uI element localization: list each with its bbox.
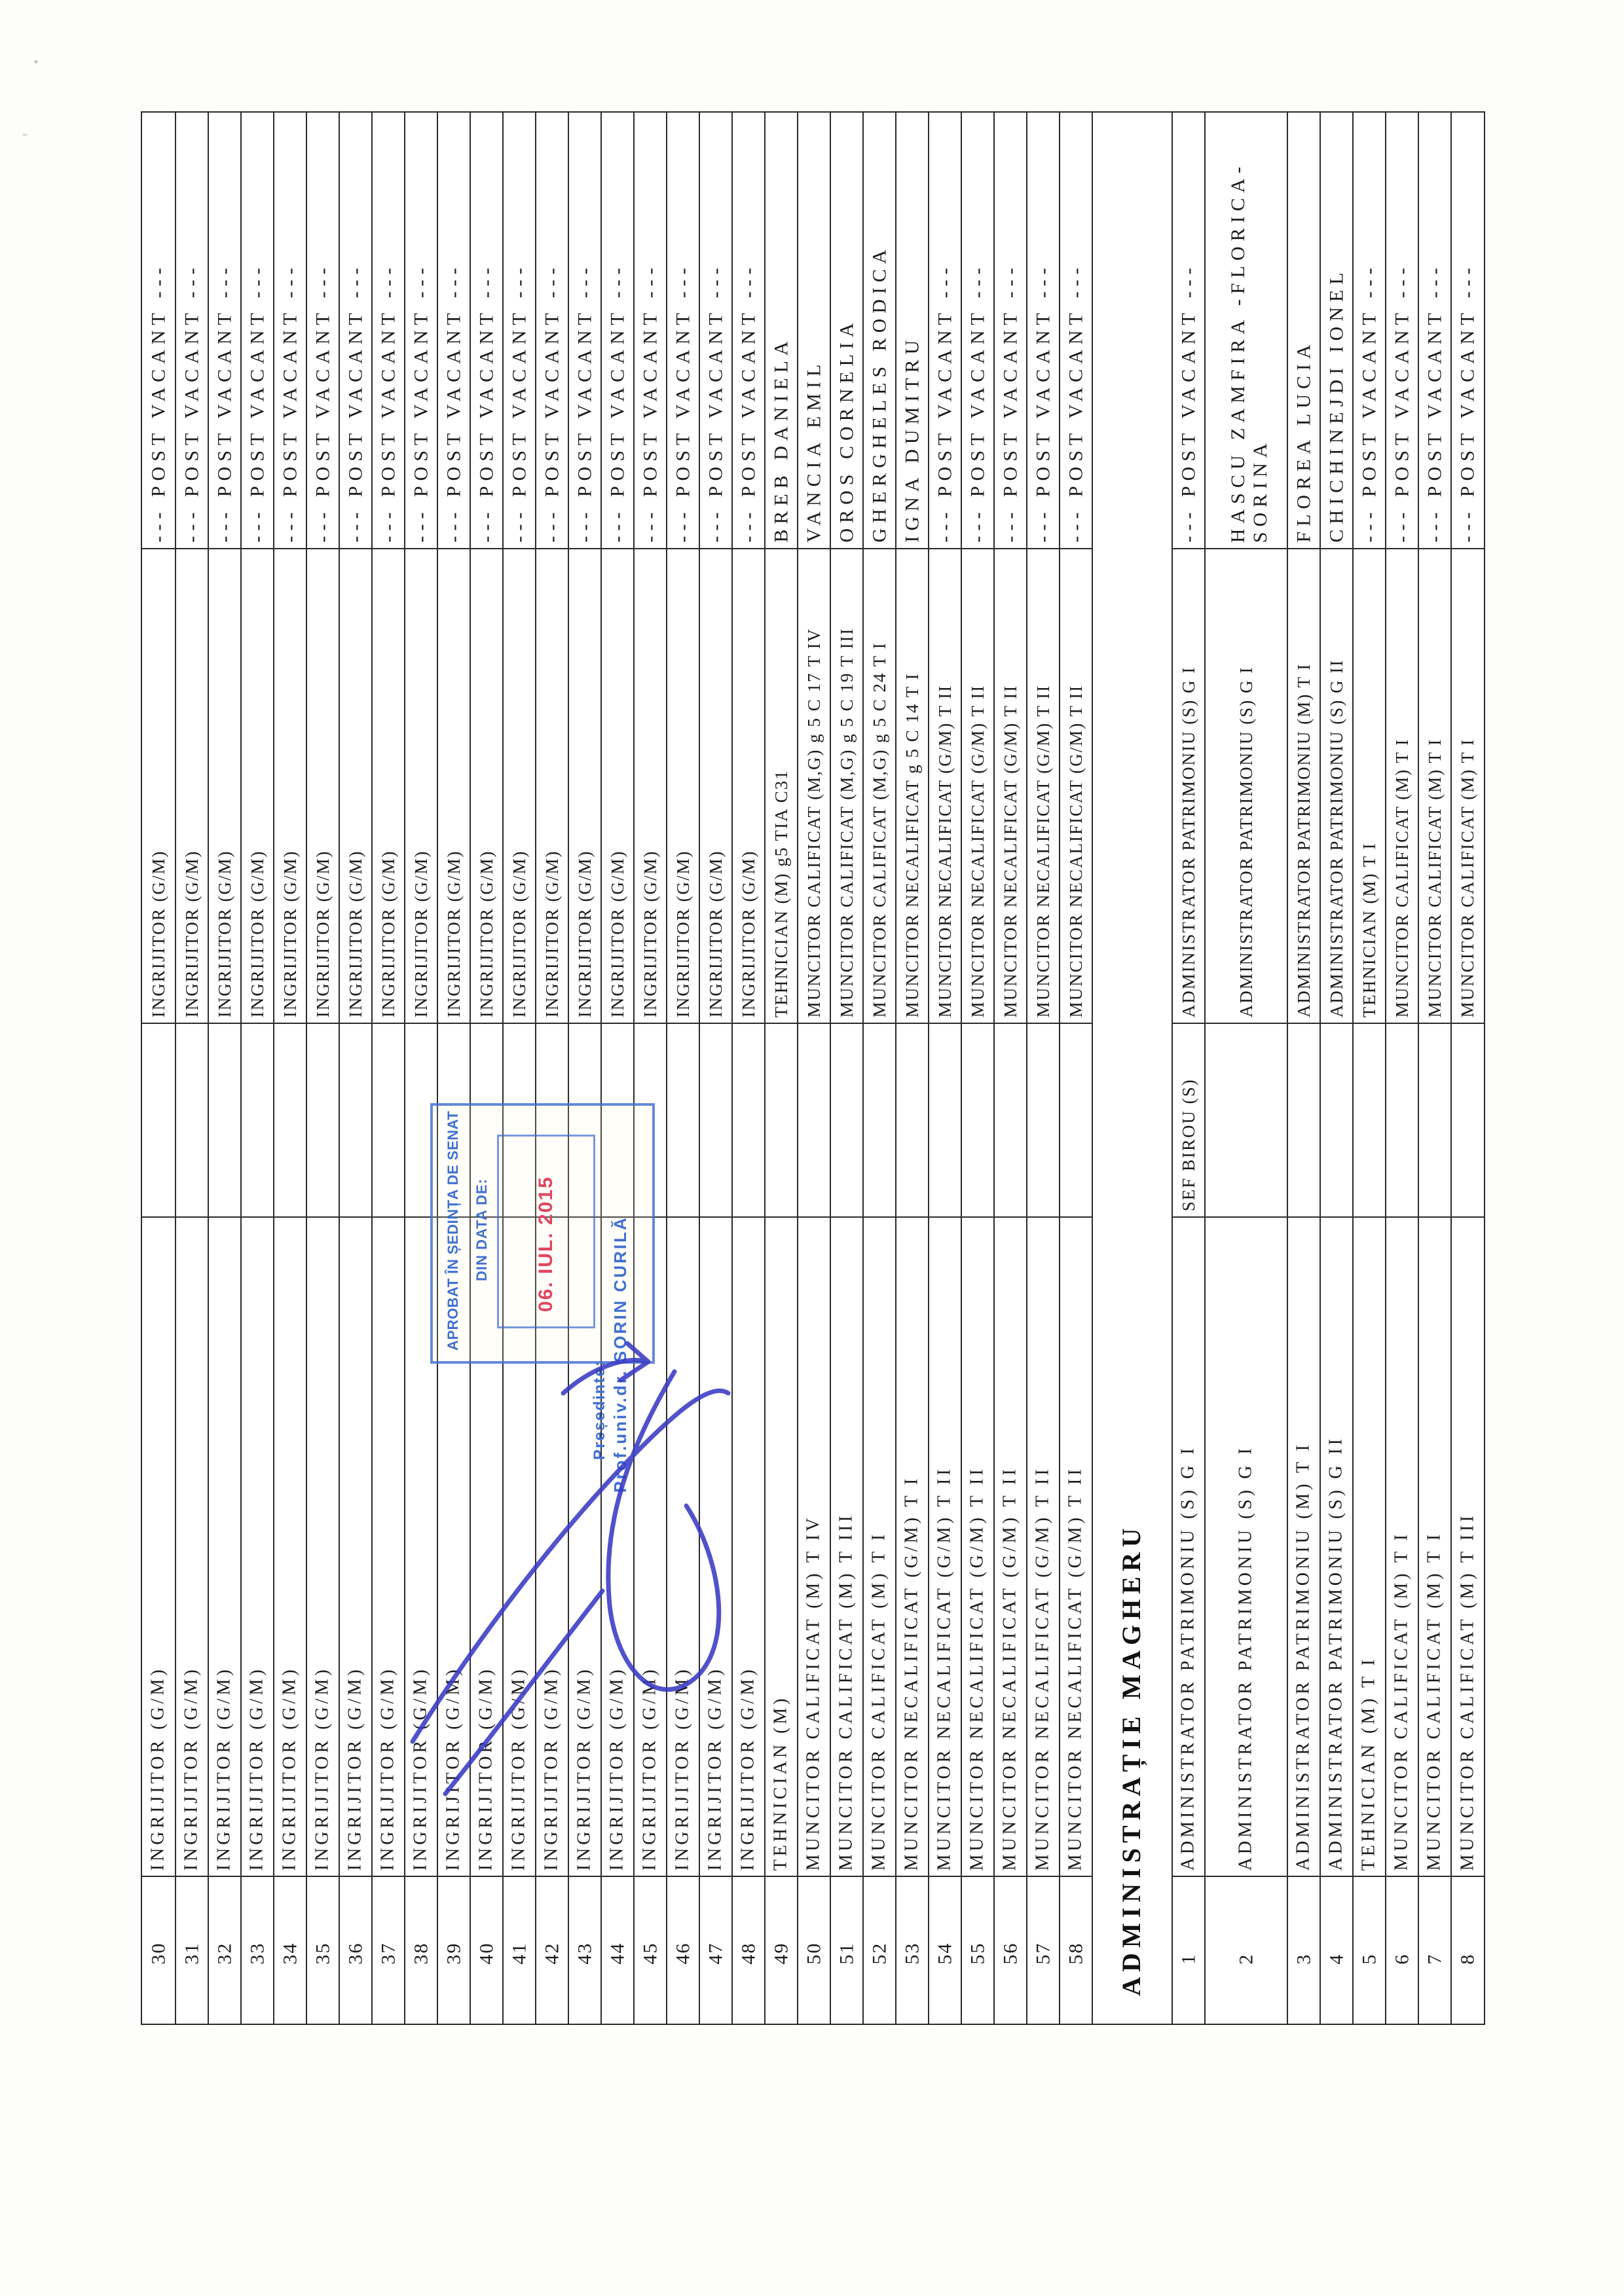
cell-holder-name-text: --- POST VACANT --- <box>279 263 301 543</box>
cell-holder-name: --- POST VACANT --- <box>1060 113 1092 549</box>
cell-row-number-text: 42 <box>541 1942 563 1965</box>
cell-row-number-text: 8 <box>1456 1954 1479 1965</box>
cell-position-detail: MUNCITOR CALIFICAT (M) T I <box>1452 549 1484 1024</box>
cell-position: MUNCITOR CALIFICAT (M) T I <box>1419 1218 1450 1877</box>
cell-position-text: INGRIJITOR (G/M) <box>214 1666 234 1870</box>
cell-position-detail: MUNCITOR NECALIFICAT (G/M) T II <box>1060 549 1092 1024</box>
cell-position: MUNCITOR CALIFICAT (M) T I <box>864 1218 895 1877</box>
cell-management-position <box>896 1024 928 1218</box>
cell-position-text: ADMINISTRATOR PATRIMONIU (S) G II <box>1326 1436 1346 1870</box>
cell-holder-name: CHICHINEJDI IONEL <box>1321 113 1352 549</box>
cell-row-number-text: 55 <box>967 1942 989 1965</box>
cell-row-number-text: 1 <box>1177 1954 1200 1965</box>
cell-management-position <box>766 1024 797 1218</box>
cell-row-number-text: 54 <box>934 1942 956 1965</box>
cell-position-detail-text: MUNCITOR CALIFICAT (M,G) g 5 C 17 T IV <box>804 628 824 1017</box>
cell-position-detail: ADMINISTRATOR PATRIMONIU (S) G I <box>1173 549 1204 1024</box>
cell-row-number: 48 <box>733 1877 764 2024</box>
cell-management-position <box>1386 1024 1418 1218</box>
cell-holder-name-text: --- POST VACANT --- <box>246 263 268 543</box>
cell-row-number: 55 <box>962 1877 993 2024</box>
cell-position-text: MUNCITOR NECALIFICAT (G/M) T II <box>1065 1466 1086 1870</box>
cell-row-number-text: 2 <box>1235 1954 1257 1965</box>
table-row: --- POST VACANT ---TEHNICIAN (M) T ITEHN… <box>1352 113 1385 2024</box>
cell-holder-name-text: CHICHINEJDI IONEL <box>1325 268 1348 543</box>
cell-holder-name-text: --- POST VACANT --- <box>410 263 432 543</box>
cell-holder-name-text: --- POST VACANT --- <box>1456 263 1479 543</box>
cell-row-number-text: 32 <box>213 1942 236 1965</box>
cell-position-detail-text: INGRIJITOR (G/M) <box>411 850 431 1017</box>
cell-position: INGRIJITOR (G/M) <box>274 1218 306 1877</box>
table-row: --- POST VACANT ---INGRIJITOR (G/M)INGRI… <box>208 113 240 2024</box>
cell-holder-name: --- POST VACANT --- <box>405 113 437 549</box>
cell-row-number: 56 <box>995 1877 1026 2024</box>
cell-row-number-text: 37 <box>377 1942 399 1965</box>
cell-position-detail: INGRIJITOR (G/M) <box>536 549 568 1024</box>
cell-row-number: 32 <box>209 1877 240 2024</box>
cell-position-detail-text: INGRIJITOR (G/M) <box>640 850 660 1017</box>
cell-holder-name: --- POST VACANT --- <box>929 113 961 549</box>
cell-holder-name-text: --- POST VACANT --- <box>639 263 661 543</box>
cell-position-detail-text: INGRIJITOR (G/M) <box>542 850 562 1017</box>
table-row: --- POST VACANT ---MUNCITOR NECALIFICAT … <box>928 113 961 2024</box>
cell-holder-name: --- POST VACANT --- <box>700 113 731 549</box>
cell-row-number: 52 <box>864 1877 895 2024</box>
cell-holder-name: HASCU ZAMFIRA -FLORICA-SORINA <box>1206 113 1287 549</box>
cell-position-detail-text: INGRIJITOR (G/M) <box>346 850 365 1017</box>
cell-holder-name-text: OROS CORNELIA <box>836 318 858 543</box>
cell-position-detail: MUNCITOR NECALIFICAT (G/M) T II <box>929 549 961 1024</box>
cell-position-text: INGRIJITOR (G/M) <box>247 1666 267 1870</box>
cell-holder-name: --- POST VACANT --- <box>1173 113 1204 549</box>
cell-holder-name-text: --- POST VACANT --- <box>213 263 236 543</box>
table-row: --- POST VACANT ---ADMINISTRATOR PATRIMO… <box>1172 113 1204 2024</box>
cell-position-detail-text: MUNCITOR NECALIFICAT (G/M) T II <box>1001 684 1020 1017</box>
cell-holder-name: --- POST VACANT --- <box>962 113 993 549</box>
cell-position-detail-text: ADMINISTRATOR PATRIMONIU (S) G II <box>1327 659 1346 1017</box>
cell-position-detail: INGRIJITOR (G/M) <box>373 549 404 1024</box>
cell-position-detail-text: ADMINISTRATOR PATRIMONIU (M) T I <box>1294 663 1314 1017</box>
cell-holder-name-text: --- POST VACANT --- <box>508 263 530 543</box>
cell-position-detail-text: INGRIJITOR (G/M) <box>739 850 758 1017</box>
cell-position: MUNCITOR NECALIFICAT (G/M) T II <box>995 1218 1026 1877</box>
cell-position-detail-text: TEHNICIAN (M) g5 TIA C31 <box>771 769 791 1017</box>
cell-holder-name-text: --- POST VACANT --- <box>312 263 334 543</box>
cell-management-position <box>667 1024 699 1218</box>
cell-row-number-text: 6 <box>1391 1954 1413 1965</box>
cell-holder-name: --- POST VACANT --- <box>504 113 535 549</box>
cell-row-number-text: 52 <box>868 1942 891 1965</box>
cell-row-number: 33 <box>242 1877 273 2024</box>
cell-position-text: MUNCITOR CALIFICAT (M) T IV <box>803 1514 824 1870</box>
cell-position-detail-text: INGRIJITOR (G/M) <box>149 850 168 1017</box>
cell-holder-name-text: --- POST VACANT --- <box>737 263 760 543</box>
cell-row-number: 58 <box>1060 1877 1092 2024</box>
table-row: --- POST VACANT ---MUNCITOR NECALIFICAT … <box>1026 113 1059 2024</box>
cell-position-detail-text: MUNCITOR CALIFICAT (M) T I <box>1458 738 1477 1017</box>
cell-position-detail: INGRIJITOR (G/M) <box>176 549 208 1024</box>
cell-row-number: 54 <box>929 1877 961 2024</box>
cell-row-number-text: 5 <box>1358 1954 1380 1965</box>
cell-position-text: MUNCITOR CALIFICAT (M) T III <box>836 1512 857 1870</box>
table-row: FLOREA LUCIAADMINISTRATOR PATRIMONIU (M)… <box>1287 113 1319 2024</box>
cell-row-number-text: 31 <box>181 1942 203 1965</box>
cell-row-number: 8 <box>1452 1877 1484 2024</box>
cell-holder-name: IGNA DUMITRU <box>896 113 928 549</box>
cell-position: ADMINISTRATOR PATRIMONIU (S) G II <box>1321 1218 1352 1877</box>
cell-holder-name-text: GHERGHELES RODICA <box>868 245 891 543</box>
cell-holder-name: --- POST VACANT --- <box>569 113 600 549</box>
cell-holder-name: --- POST VACANT --- <box>209 113 240 549</box>
cell-position-detail: INGRIJITOR (G/M) <box>602 549 633 1024</box>
cell-holder-name: VANCIA EMIL <box>798 113 830 549</box>
cell-holder-name: --- POST VACANT --- <box>340 113 371 549</box>
cell-position-detail-text: MUNCITOR NECALIFICAT (G/M) T II <box>1066 684 1086 1017</box>
cell-position-detail-text: INGRIJITOR (G/M) <box>477 850 496 1017</box>
cell-holder-name-text: VANCIA EMIL <box>803 359 825 543</box>
cell-position: MUNCITOR NECALIFICAT (G/M) T I <box>896 1218 928 1877</box>
cell-position-detail-text: MUNCITOR NECALIFICAT (G/M) T II <box>935 684 955 1017</box>
cell-management-position <box>798 1024 830 1218</box>
cell-position-detail-text: INGRIJITOR (G/M) <box>509 850 529 1017</box>
cell-row-number: 2 <box>1206 1877 1287 2024</box>
cell-management-position <box>142 1024 175 1218</box>
cell-row-number-text: 43 <box>574 1942 596 1965</box>
cell-management-position <box>176 1024 208 1218</box>
cell-management-position <box>962 1024 993 1218</box>
scanned-page: { "stamp": { "line1": "APROBAT ÎN ȘEDINȚ… <box>0 0 1624 2296</box>
cell-position-detail: INGRIJITOR (G/M) <box>405 549 437 1024</box>
cell-row-number: 35 <box>307 1877 339 2024</box>
cell-row-number-text: 40 <box>475 1942 498 1965</box>
cell-management-position <box>733 1024 764 1218</box>
cell-position-text: MUNCITOR NECALIFICAT (G/M) T II <box>967 1466 987 1870</box>
cell-position-detail-text: MUNCITOR CALIFICAT (M,G) g 5 C 19 T III <box>837 627 857 1017</box>
cell-position: MUNCITOR CALIFICAT (M) T III <box>831 1218 862 1877</box>
cell-holder-name-text: --- POST VACANT --- <box>999 263 1022 543</box>
table-row: --- POST VACANT ---INGRIJITOR (G/M)INGRI… <box>240 113 273 2024</box>
cell-row-number-text: 45 <box>639 1942 661 1965</box>
cell-position-text: MUNCITOR CALIFICAT (M) T I <box>869 1531 889 1870</box>
cell-holder-name: --- POST VACANT --- <box>1452 113 1484 549</box>
cell-management-position <box>242 1024 273 1218</box>
cell-management-position <box>274 1024 306 1218</box>
cell-position-text: ADMINISTRATOR PATRIMONIU (M) T I <box>1293 1442 1314 1870</box>
cell-management-position <box>209 1024 240 1218</box>
cell-position-detail: INGRIJITOR (G/M) <box>242 549 273 1024</box>
cell-holder-name-text: --- POST VACANT --- <box>475 263 498 543</box>
cell-row-number: 39 <box>438 1877 470 2024</box>
cell-position: INGRIJITOR (G/M) <box>242 1218 273 1877</box>
cell-position: MUNCITOR NECALIFICAT (G/M) T II <box>1027 1218 1059 1877</box>
cell-holder-name: --- POST VACANT --- <box>142 113 175 549</box>
table-row: OROS CORNELIAMUNCITOR CALIFICAT (M,G) g … <box>830 113 862 2024</box>
cell-position: MUNCITOR CALIFICAT (M) T IV <box>798 1218 830 1877</box>
cell-row-number: 38 <box>405 1877 437 2024</box>
cell-row-number: 40 <box>471 1877 502 2024</box>
cell-row-number: 37 <box>373 1877 404 2024</box>
cell-holder-name-text: --- POST VACANT --- <box>1032 263 1054 543</box>
cell-holder-name-text: --- POST VACANT --- <box>705 263 727 543</box>
table-row: HASCU ZAMFIRA -FLORICA-SORINAADMINISTRAT… <box>1204 113 1287 2024</box>
cell-management-position <box>700 1024 731 1218</box>
cell-position-detail: INGRIJITOR (G/M) <box>274 549 306 1024</box>
cell-row-number-text: 51 <box>836 1942 858 1965</box>
cell-management-position <box>1354 1024 1385 1218</box>
table-row: --- POST VACANT ---MUNCITOR NECALIFICAT … <box>993 113 1026 2024</box>
cell-holder-name-text: --- POST VACANT --- <box>1358 263 1380 543</box>
cell-holder-name-text: --- POST VACANT --- <box>541 263 563 543</box>
cell-management-position: SEF BIROU (S) <box>1173 1024 1204 1218</box>
cell-row-number-text: 44 <box>606 1942 629 1965</box>
cell-row-number-text: 50 <box>803 1942 825 1965</box>
cell-holder-name-text: --- POST VACANT --- <box>377 263 399 543</box>
cell-holder-name-text: --- POST VACANT --- <box>967 263 989 543</box>
cell-holder-name: OROS CORNELIA <box>831 113 862 549</box>
cell-position-detail-text: INGRIJITOR (G/M) <box>706 850 726 1017</box>
cell-holder-name: --- POST VACANT --- <box>1027 113 1059 549</box>
table-row: VANCIA EMILMUNCITOR CALIFICAT (M,G) g 5 … <box>797 113 830 2024</box>
cell-position-detail: INGRIJITOR (G/M) <box>733 549 764 1024</box>
cell-position-text: MUNCITOR NECALIFICAT (G/M) T I <box>902 1475 922 1870</box>
cell-position-detail: MUNCITOR NECALIFICAT (G/M) T II <box>1027 549 1059 1024</box>
cell-position-detail: INGRIJITOR (G/M) <box>471 549 502 1024</box>
table-row: --- POST VACANT ---INGRIJITOR (G/M)INGRI… <box>175 113 208 2024</box>
cell-management-position <box>1288 1024 1319 1218</box>
cell-row-number: 46 <box>667 1877 699 2024</box>
cell-position-detail: INGRIJITOR (G/M) <box>569 549 600 1024</box>
table-row: --- POST VACANT ---INGRIJITOR (G/M)INGRI… <box>273 113 306 2024</box>
cell-row-number: 5 <box>1354 1877 1385 2024</box>
cell-holder-name-text: --- POST VACANT --- <box>181 263 203 543</box>
cell-holder-name: --- POST VACANT --- <box>1354 113 1385 549</box>
cell-position-detail: INGRIJITOR (G/M) <box>438 549 470 1024</box>
cell-row-number: 47 <box>700 1877 731 2024</box>
stamp-date-label: DIN DATA DE: <box>475 1178 489 1281</box>
cell-row-number-text: 39 <box>443 1942 465 1965</box>
section-header: ADMINISTRAȚIE MAGHERU <box>1092 113 1172 2024</box>
cell-position: MUNCITOR NECALIFICAT (G/M) T II <box>1060 1218 1092 1877</box>
cell-position-detail-text: INGRIJITOR (G/M) <box>575 850 595 1017</box>
cell-holder-name: --- POST VACANT --- <box>1386 113 1418 549</box>
cell-position-text: TEHNICIAN (M) T I <box>1359 1656 1379 1870</box>
cell-holder-name-text: --- POST VACANT --- <box>443 263 465 543</box>
cell-management-position <box>995 1024 1026 1218</box>
cell-position-text: MUNCITOR CALIFICAT (M) T I <box>1392 1531 1412 1870</box>
cell-position-detail-text: INGRIJITOR (G/M) <box>182 850 202 1017</box>
cell-position-detail: TEHNICIAN (M) g5 TIA C31 <box>766 549 797 1024</box>
cell-holder-name: GHERGHELES RODICA <box>864 113 895 549</box>
table-row: CHICHINEJDI IONELADMINISTRATOR PATRIMONI… <box>1319 113 1352 2024</box>
table-row: --- POST VACANT ---MUNCITOR CALIFICAT (M… <box>1385 113 1418 2024</box>
cell-position-detail: INGRIJITOR (G/M) <box>667 549 699 1024</box>
table-row: --- POST VACANT ---INGRIJITOR (G/M)INGRI… <box>306 113 339 2024</box>
cell-holder-name-text: HASCU ZAMFIRA -FLORICA-SORINA <box>1227 162 1270 543</box>
section-header-cell: ADMINISTRAȚIE MAGHERU <box>1093 113 1172 2024</box>
cell-position-text: MUNCITOR NECALIFICAT (G/M) T II <box>1033 1466 1053 1870</box>
cell-position-text: MUNCITOR NECALIFICAT (G/M) T II <box>934 1466 955 1870</box>
cell-management-position <box>929 1024 961 1218</box>
cell-position-text: INGRIJITOR (G/M) <box>312 1666 333 1870</box>
cell-position: INGRIJITOR (G/M) <box>142 1218 175 1877</box>
cell-row-number: 1 <box>1173 1877 1204 2024</box>
cell-position-text: INGRIJITOR (G/M) <box>181 1666 202 1870</box>
cell-position-detail: ADMINISTRATOR PATRIMONIU (S) G I <box>1206 549 1287 1024</box>
cell-management-position-text: SEF BIROU (S) <box>1179 1078 1198 1211</box>
cell-management-position <box>1027 1024 1059 1218</box>
cell-row-number: 36 <box>340 1877 371 2024</box>
cell-position-text: MUNCITOR CALIFICAT (M) T III <box>1458 1512 1478 1870</box>
cell-holder-name-text: --- POST VACANT --- <box>147 263 170 543</box>
cell-position: MUNCITOR CALIFICAT (M) T III <box>1452 1218 1484 1877</box>
cell-position-detail: MUNCITOR CALIFICAT (M) T I <box>1386 549 1418 1024</box>
cell-management-position <box>340 1024 371 1218</box>
cell-holder-name-text: BREB DANIELA <box>770 337 792 543</box>
cell-holder-name: FLOREA LUCIA <box>1288 113 1319 549</box>
cell-row-number-text: 56 <box>999 1942 1022 1965</box>
cell-position-text: TEHNICIAN (M) <box>771 1695 791 1870</box>
cell-row-number-text: 53 <box>901 1942 923 1965</box>
cell-row-number-text: 58 <box>1065 1942 1087 1965</box>
cell-management-position <box>1419 1024 1450 1218</box>
cell-row-number: 49 <box>766 1877 797 2024</box>
cell-holder-name: --- POST VACANT --- <box>274 113 306 549</box>
cell-row-number: 34 <box>274 1877 306 2024</box>
cell-row-number: 31 <box>176 1877 208 2024</box>
cell-management-position <box>307 1024 339 1218</box>
cell-position: INGRIJITOR (G/M) <box>209 1218 240 1877</box>
cell-row-number: 51 <box>831 1877 862 2024</box>
cell-position-detail: INGRIJITOR (G/M) <box>142 549 175 1024</box>
cell-management-position <box>1206 1024 1287 1218</box>
cell-position-detail: MUNCITOR CALIFICAT (M) T I <box>1419 549 1450 1024</box>
cell-position-text: MUNCITOR NECALIFICAT (G/M) T II <box>1000 1466 1020 1870</box>
cell-holder-name: --- POST VACANT --- <box>667 113 699 549</box>
cell-row-number: 45 <box>635 1877 666 2024</box>
cell-position: INGRIJITOR (G/M) <box>307 1218 339 1877</box>
section-header-label: ADMINISTRAȚIE MAGHERU <box>1117 1523 1147 1997</box>
cell-holder-name: --- POST VACANT --- <box>471 113 502 549</box>
table-row: --- POST VACANT ---MUNCITOR CALIFICAT (M… <box>1450 113 1484 2024</box>
cell-management-position <box>1060 1024 1092 1218</box>
cell-row-number-text: 41 <box>508 1942 530 1965</box>
table-row: IGNA DUMITRUMUNCITOR NECALIFICAT g 5 C 1… <box>895 113 928 2024</box>
cell-row-number-text: 34 <box>279 1942 301 1965</box>
cell-position-detail: INGRIJITOR (G/M) <box>504 549 535 1024</box>
cell-position-detail: MUNCITOR CALIFICAT (M,G) g 5 C 17 T IV <box>798 549 830 1024</box>
cell-holder-name: --- POST VACANT --- <box>1419 113 1450 549</box>
table-row: GHERGHELES RODICAMUNCITOR CALIFICAT (M,G… <box>862 113 895 2024</box>
cell-position-detail-text: INGRIJITOR (G/M) <box>248 850 267 1017</box>
cell-position-detail-text: MUNCITOR CALIFICAT (M,G) g 5 C 24 T I <box>870 642 889 1017</box>
signature <box>367 1309 773 1807</box>
cell-position-detail-text: TEHNICIAN (M) T I <box>1359 842 1379 1017</box>
cell-holder-name: --- POST VACANT --- <box>242 113 273 549</box>
cell-holder-name-text: --- POST VACANT --- <box>344 263 367 543</box>
cell-row-number-text: 57 <box>1032 1942 1054 1965</box>
cell-holder-name-text: --- POST VACANT --- <box>1424 263 1446 543</box>
cell-holder-name: --- POST VACANT --- <box>307 113 339 549</box>
cell-holder-name-text: --- POST VACANT --- <box>606 263 629 543</box>
staffing-table: --- POST VACANT ---INGRIJITOR (G/M)INGRI… <box>141 111 1485 2025</box>
scan-speck <box>22 134 28 136</box>
cell-row-number-text: 47 <box>705 1942 727 1965</box>
cell-row-number: 44 <box>602 1877 633 2024</box>
cell-position-detail: ADMINISTRATOR PATRIMONIU (M) T I <box>1288 549 1319 1024</box>
cell-position: ADMINISTRATOR PATRIMONIU (M) T I <box>1288 1218 1319 1877</box>
cell-position-detail: INGRIJITOR (G/M) <box>340 549 371 1024</box>
cell-position-detail-text: MUNCITOR CALIFICAT (M) T I <box>1425 738 1445 1017</box>
cell-position-detail-text: ADMINISTRATOR PATRIMONIU (S) G I <box>1179 666 1198 1017</box>
table-row: --- POST VACANT ---MUNCITOR NECALIFICAT … <box>961 113 993 2024</box>
cell-row-number-text: 36 <box>344 1942 367 1965</box>
cell-position-detail: INGRIJITOR (G/M) <box>307 549 339 1024</box>
cell-position-detail: TEHNICIAN (M) T I <box>1354 549 1385 1024</box>
cell-position-detail-text: ADMINISTRATOR PATRIMONIU (S) G I <box>1236 666 1256 1017</box>
cell-row-number-text: 48 <box>737 1942 760 1965</box>
cell-holder-name: --- POST VACANT --- <box>635 113 666 549</box>
date-stamp-value: 06. IUL. 2015 <box>536 1176 556 1312</box>
cell-holder-name-text: --- POST VACANT --- <box>1065 263 1087 543</box>
cell-position-detail: INGRIJITOR (G/M) <box>209 549 240 1024</box>
cell-row-number-text: 49 <box>770 1942 792 1965</box>
cell-row-number: 53 <box>896 1877 928 2024</box>
cell-position: TEHNICIAN (M) T I <box>1354 1218 1385 1877</box>
cell-position-detail-text: MUNCITOR NECALIFICAT (G/M) T II <box>968 684 987 1017</box>
cell-position-detail: MUNCITOR NECALIFICAT (G/M) T II <box>995 549 1026 1024</box>
cell-position-text: INGRIJITOR (G/M) <box>345 1666 365 1870</box>
table-row: --- POST VACANT ---INGRIJITOR (G/M)INGRI… <box>142 113 175 2024</box>
cell-position-detail: MUNCITOR NECALIFICAT g 5 C 14 T I <box>896 549 928 1024</box>
table-row: --- POST VACANT ---MUNCITOR CALIFICAT (M… <box>1418 113 1450 2024</box>
cell-holder-name: --- POST VACANT --- <box>438 113 470 549</box>
cell-holder-name: --- POST VACANT --- <box>602 113 633 549</box>
cell-position: ADMINISTRATOR PATRIMONIU (S) G I <box>1206 1218 1287 1877</box>
cell-holder-name: --- POST VACANT --- <box>995 113 1026 549</box>
cell-position-text: INGRIJITOR (G/M) <box>280 1666 300 1870</box>
cell-holder-name-text: --- POST VACANT --- <box>1391 263 1413 543</box>
cell-row-number-text: 7 <box>1424 1954 1446 1965</box>
cell-holder-name-text: --- POST VACANT --- <box>672 263 694 543</box>
cell-position-detail: MUNCITOR CALIFICAT (M,G) g 5 C 24 T I <box>864 549 895 1024</box>
cell-position-text: ADMINISTRATOR PATRIMONIU (S) G I <box>1236 1445 1256 1870</box>
date-stamp-box: 06. IUL. 2015 <box>497 1135 595 1328</box>
cell-row-number-text: 35 <box>312 1942 334 1965</box>
cell-row-number: 7 <box>1419 1877 1450 2024</box>
cell-row-number: 43 <box>569 1877 600 2024</box>
cell-position-detail-text: INGRIJITOR (G/M) <box>215 850 234 1017</box>
cell-position-detail-text: MUNCITOR NECALIFICAT (G/M) T II <box>1033 684 1053 1017</box>
cell-position-text: MUNCITOR CALIFICAT (M) T I <box>1424 1531 1445 1870</box>
cell-position-detail: ADMINISTRATOR PATRIMONIU (S) G II <box>1321 549 1352 1024</box>
scan-speck <box>34 60 38 64</box>
cell-holder-name: --- POST VACANT --- <box>373 113 404 549</box>
cell-position-detail-text: INGRIJITOR (G/M) <box>378 850 398 1017</box>
cell-position: MUNCITOR CALIFICAT (M) T I <box>1386 1218 1418 1877</box>
cell-row-number: 42 <box>536 1877 568 2024</box>
cell-position: MUNCITOR NECALIFICAT (G/M) T II <box>929 1218 961 1877</box>
cell-position-detail-text: MUNCITOR NECALIFICAT g 5 C 14 T I <box>902 672 922 1017</box>
cell-management-position <box>864 1024 895 1218</box>
cell-management-position <box>1321 1024 1352 1218</box>
cell-holder-name-text: --- POST VACANT --- <box>1177 263 1200 543</box>
cell-row-number: 4 <box>1321 1877 1352 2024</box>
cell-row-number-text: 33 <box>246 1942 268 1965</box>
cell-row-number-text: 46 <box>672 1942 694 1965</box>
cell-management-position <box>373 1024 404 1218</box>
cell-holder-name-text: IGNA DUMITRU <box>901 335 923 543</box>
cell-position-detail-text: INGRIJITOR (G/M) <box>444 850 464 1017</box>
